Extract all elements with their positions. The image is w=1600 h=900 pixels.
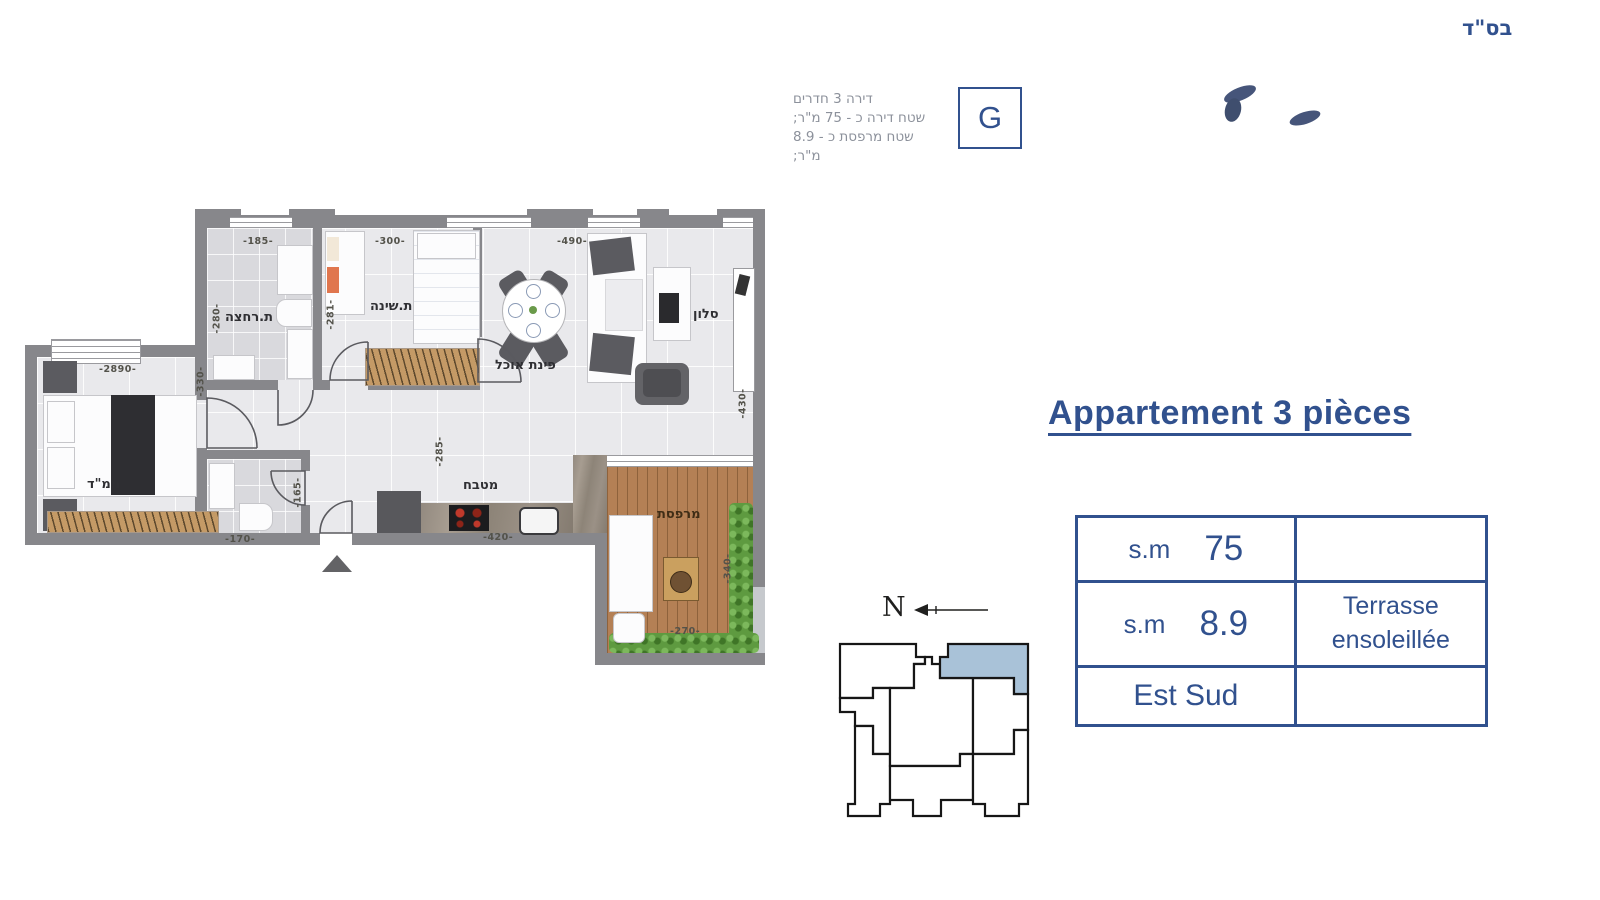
info-line: דירה 3 חדרים — [793, 90, 945, 109]
orientation-value: Est Sud — [1133, 679, 1238, 713]
room-label-bathroom: ת.רחצה — [225, 310, 273, 325]
page-title: Appartement 3 pièces — [1048, 394, 1411, 433]
room-label-mamad: ממ"ד — [87, 477, 120, 492]
door-bathroom — [278, 390, 313, 425]
table-cell: Terrasse ensoleillée — [1297, 583, 1485, 665]
room-label-bedroom: ת.שינה — [370, 299, 412, 314]
room-label-dining: פינת אוכל — [495, 358, 556, 373]
door-arcs — [25, 215, 767, 671]
unit-label: s.m — [1124, 609, 1166, 640]
dimension-label: -280- — [212, 303, 223, 333]
bsd-text: בס"ד — [1462, 16, 1512, 40]
table-cell: s.m 75 — [1078, 518, 1297, 580]
info-line: שטח דירה כ - 75 מ"ר; — [793, 109, 945, 128]
bird-icon — [1212, 76, 1342, 148]
north-arrow-icon — [912, 600, 992, 620]
area-value: 75 — [1204, 529, 1243, 569]
info-line: שטח מרפסת כ - 8.9 מ"ר; — [793, 128, 945, 166]
north-label: N — [882, 592, 906, 623]
room-label-kitchen: מטבח — [463, 478, 498, 493]
dimension-label: -430- — [738, 388, 749, 418]
dimension-label: -330- — [196, 366, 207, 396]
dimension-label: -185- — [243, 236, 273, 247]
dimension-label: -300- — [375, 236, 405, 247]
dimension-label: -285- — [435, 436, 446, 466]
table-row: s.m 75 — [1078, 518, 1485, 580]
table-cell — [1297, 668, 1485, 724]
entrance-arrow-icon — [322, 555, 352, 572]
dimension-label: -165- — [293, 477, 304, 507]
unit-letter-box: G — [958, 87, 1022, 149]
page: בס"ד דירה 3 חדרים שטח דירה כ - 75 מ"ר; ש… — [0, 0, 1600, 900]
floor-plan: ת.רחצה ת.שינה פינת אוכל סלון ממ"ד מטבח מ… — [25, 215, 767, 671]
table-cell: Est Sud — [1078, 668, 1297, 724]
dimension-label: -281- — [326, 299, 337, 329]
table-row: Est Sud — [1078, 665, 1485, 724]
unit-letter: G — [978, 100, 1002, 136]
table-row: s.m 8.9 Terrasse ensoleillée — [1078, 580, 1485, 665]
key-plan — [828, 636, 1034, 826]
spec-table: s.m 75 s.m 8.9 Terrasse ensoleillée Est … — [1075, 515, 1488, 727]
table-cell — [1297, 518, 1485, 580]
dimension-label: -270- — [670, 626, 700, 637]
dimension-label: -490- — [557, 236, 587, 247]
table-cell: s.m 8.9 — [1078, 583, 1297, 665]
room-label-salon: סלון — [693, 307, 719, 322]
dimension-label: -340- — [723, 553, 734, 583]
dimension-label: -2890- — [99, 364, 136, 375]
area-value: 8.9 — [1199, 604, 1248, 644]
room-label-balcony: מרפסת — [657, 507, 701, 522]
dimension-label: -420- — [483, 532, 513, 543]
dimension-label: -170- — [225, 534, 255, 545]
apartment-info: דירה 3 חדרים שטח דירה כ - 75 מ"ר; שטח מר… — [793, 90, 945, 166]
unit-label: s.m — [1128, 534, 1170, 565]
